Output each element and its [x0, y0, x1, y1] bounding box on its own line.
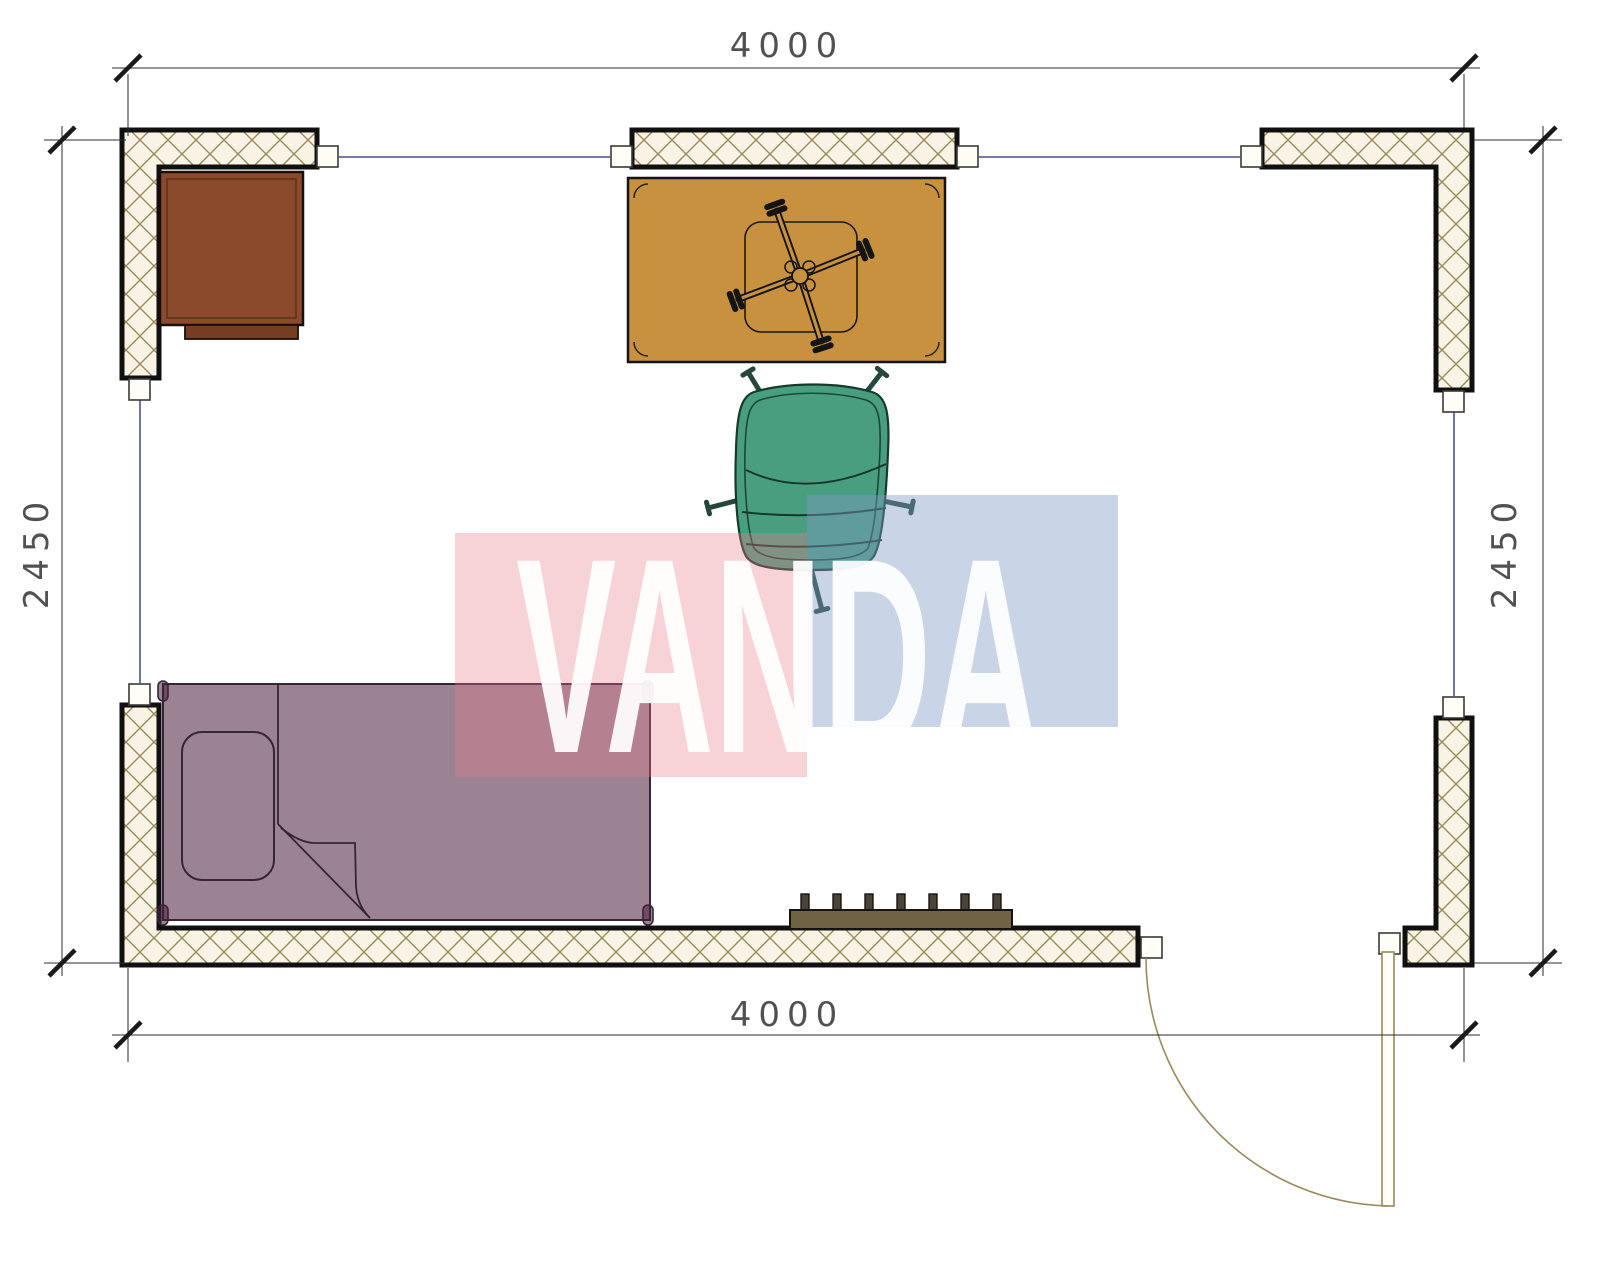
door [1146, 952, 1394, 1206]
radiator [790, 894, 1012, 929]
wall-bottom-right [1405, 718, 1472, 965]
watermark-text: VANDA [516, 500, 1040, 811]
wall-top-right [1262, 130, 1472, 390]
cabinet-drawer [185, 325, 298, 339]
wall-top-middle [632, 130, 957, 167]
floor-plan-drawing: VANDA 4000 4000 2450 2450 [0, 0, 1600, 1280]
table [628, 178, 945, 362]
dim-label-left: 2450 [17, 495, 57, 610]
floor-plan-canvas: VANDA 4000 4000 2450 2450 [0, 0, 1600, 1280]
door-swing-arc [1146, 958, 1388, 1206]
dim-label-bottom: 4000 [730, 995, 845, 1035]
door-leaf [1382, 952, 1394, 1206]
cabinet [160, 172, 303, 339]
dim-label-top: 4000 [730, 26, 845, 66]
watermark: VANDA [455, 495, 1118, 811]
dim-label-right: 2450 [1485, 495, 1525, 610]
